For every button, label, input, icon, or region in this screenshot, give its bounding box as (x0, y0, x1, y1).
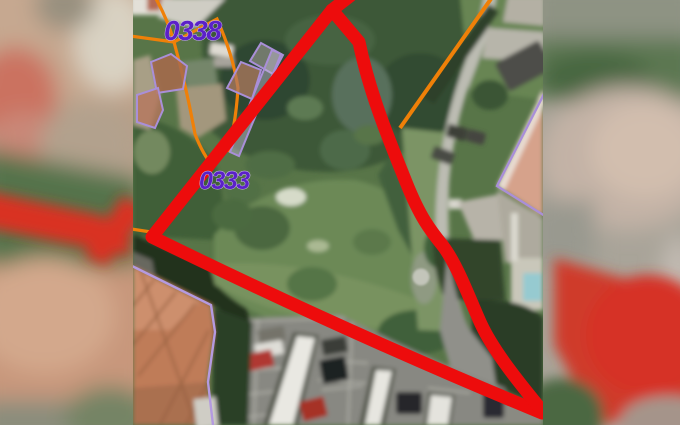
svg-text:0333: 0333 (199, 167, 250, 195)
svg-text:0338: 0338 (164, 15, 222, 46)
